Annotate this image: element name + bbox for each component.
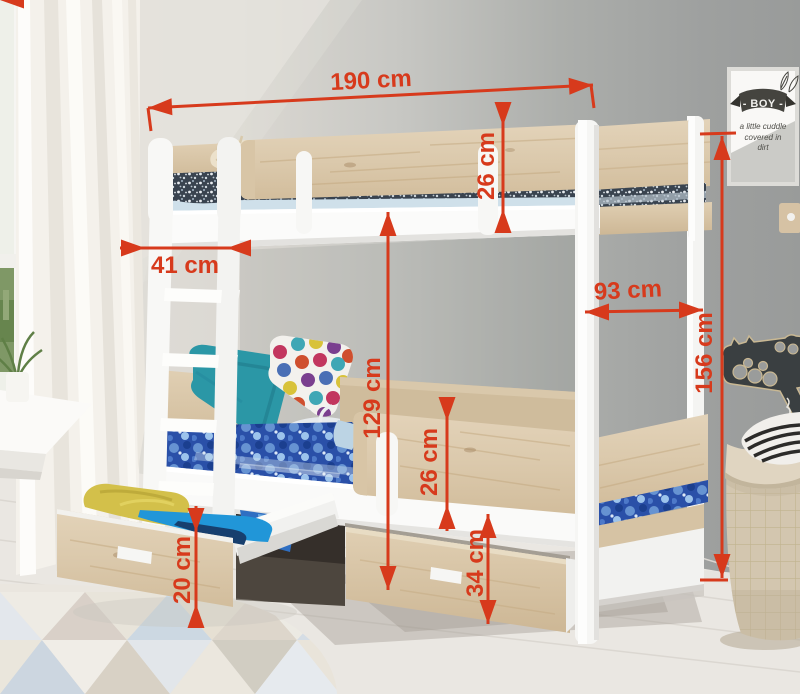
svg-text:dirt: dirt <box>757 143 769 152</box>
svg-text:129 cm: 129 cm <box>359 357 386 438</box>
svg-text:26 cm: 26 cm <box>416 428 443 496</box>
svg-text:93 cm: 93 cm <box>593 275 662 306</box>
svg-text:20 cm: 20 cm <box>169 536 196 604</box>
svg-text:190 cm: 190 cm <box>330 65 413 96</box>
svg-text:a little cuddle: a little cuddle <box>740 122 787 131</box>
svg-text:41 cm: 41 cm <box>151 252 219 279</box>
svg-text:156 cm: 156 cm <box>691 312 718 393</box>
svg-text:26 cm: 26 cm <box>473 132 500 200</box>
svg-text:34 cm: 34 cm <box>462 529 489 597</box>
svg-text:- BOY -: - BOY - <box>743 98 784 110</box>
svg-text:covered in: covered in <box>745 133 782 142</box>
